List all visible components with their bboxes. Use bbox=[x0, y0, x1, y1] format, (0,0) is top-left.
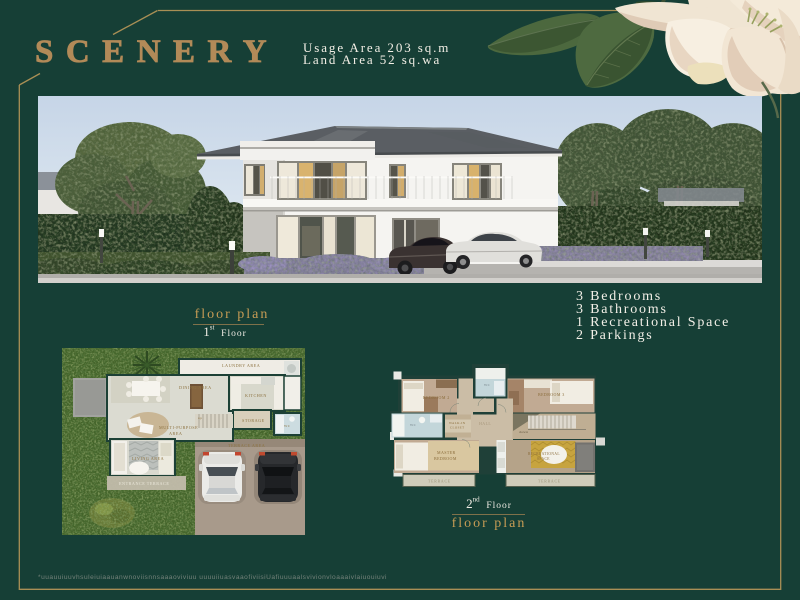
svg-text:ENTRANCE TERRACE: ENTRANCE TERRACE bbox=[119, 481, 169, 486]
svg-text:BEDROOM: BEDROOM bbox=[434, 456, 457, 461]
svg-text:BEDROOM 2: BEDROOM 2 bbox=[423, 395, 450, 400]
svg-text:WC: WC bbox=[484, 383, 491, 387]
svg-text:STORAGE: STORAGE bbox=[242, 418, 265, 423]
svg-text:DINING AREA: DINING AREA bbox=[179, 385, 212, 390]
svg-text:TERRACE: TERRACE bbox=[538, 480, 561, 484]
svg-text:SPACE: SPACE bbox=[537, 457, 550, 461]
svg-text:WC: WC bbox=[284, 424, 291, 428]
svg-text:WALK-IN: WALK-IN bbox=[449, 421, 466, 425]
svg-text:MULTI-PURPOSE: MULTI-PURPOSE bbox=[159, 425, 198, 430]
svg-text:RECREATIONAL: RECREATIONAL bbox=[528, 452, 560, 456]
svg-text:down: down bbox=[519, 430, 528, 434]
svg-text:LIVING AREA: LIVING AREA bbox=[132, 456, 164, 461]
svg-text:MASTER: MASTER bbox=[437, 450, 456, 455]
svg-text:LAUNDRY AREA: LAUNDRY AREA bbox=[222, 363, 260, 368]
svg-text:TERRACE AREA: TERRACE AREA bbox=[228, 443, 265, 448]
svg-text:AREA: AREA bbox=[169, 431, 182, 436]
svg-text:CLOSET: CLOSET bbox=[450, 426, 464, 430]
svg-text:KITCHEN: KITCHEN bbox=[245, 393, 267, 398]
svg-text:up: up bbox=[198, 416, 203, 420]
svg-text:TERRACE: TERRACE bbox=[428, 480, 451, 484]
svg-text:WC: WC bbox=[410, 423, 417, 427]
svg-text:HALL: HALL bbox=[479, 421, 491, 426]
svg-text:BEDROOM 3: BEDROOM 3 bbox=[538, 392, 565, 397]
